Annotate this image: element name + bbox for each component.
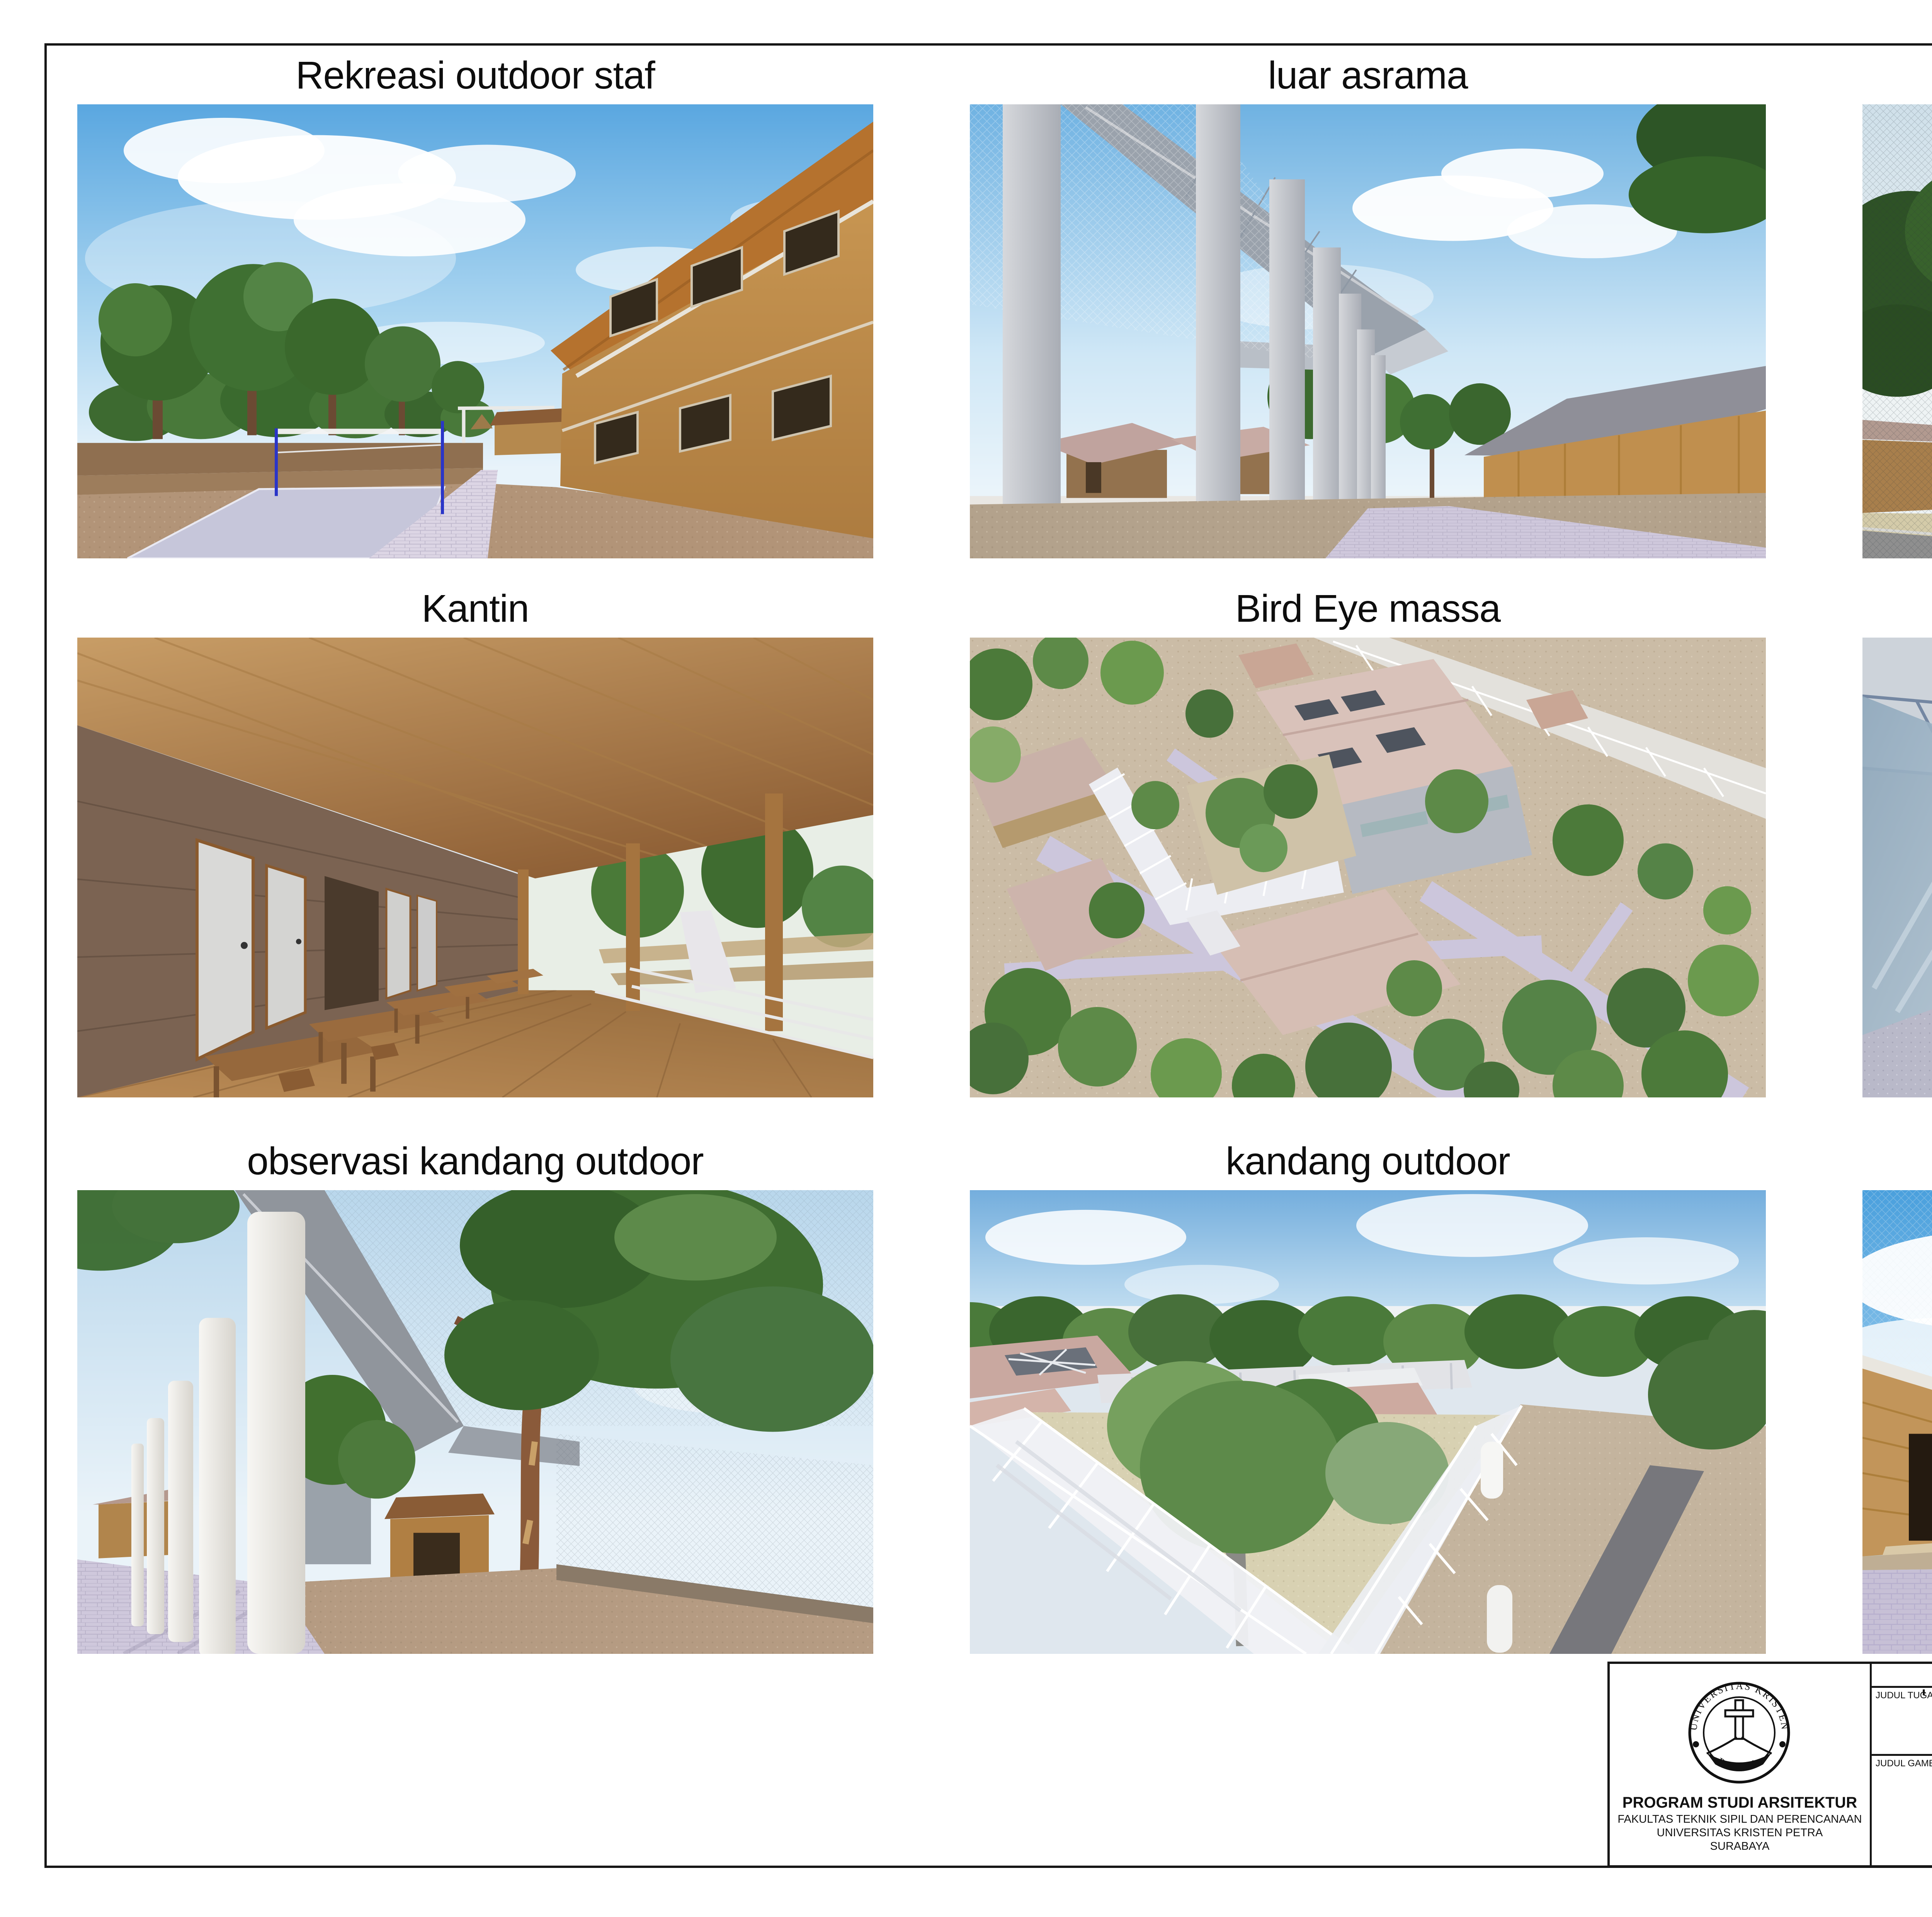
panel-title: Rekreasi outdoor staf xyxy=(77,46,873,104)
judul-gambar-cell: JUDUL GAMBAR Perspektif xyxy=(1872,1756,1932,1865)
render-entrance-kandang-dan-satwa xyxy=(1862,1190,1932,1654)
institution-faculty: FAKULTAS TEKNIK SIPIL DAN PERENCANAAN xyxy=(1610,1813,1870,1826)
render-bird-eye-massa xyxy=(970,638,1766,1097)
panel-title: observasi kandang Indoor xyxy=(1862,580,1932,638)
render-image xyxy=(970,638,1766,1097)
render-kandang-outdoor-bottom xyxy=(970,1190,1766,1654)
render-observasi-kandang-indoor xyxy=(1862,638,1932,1097)
render-luar-asrama xyxy=(970,104,1766,558)
judul-gambar-value: Perspektif xyxy=(1872,1775,1932,1805)
judul-gambar-label: JUDUL GAMBAR xyxy=(1876,1758,1932,1769)
panel-title: kandang outdoor xyxy=(970,1132,1766,1190)
render-rekreasi-outdoor-staf xyxy=(77,104,873,558)
presentation-board: Rekreasi outdoor staf xyxy=(0,0,1932,1917)
judul-tugas-cell: JUDUL TUGAS Fasilitas Rehabilitasi Orang… xyxy=(1872,1688,1932,1756)
ground xyxy=(970,493,1766,558)
institution-city: SURABAYA xyxy=(1610,1840,1870,1853)
render-image xyxy=(970,104,1766,558)
panel-title: Bird Eye massa xyxy=(970,580,1766,638)
panel-kantin: Kantin xyxy=(77,580,873,1097)
institution-cell: UNIVERSITAS KRISTEN PETRA PROGRAM STUDI … xyxy=(1610,1664,1872,1865)
semester-header: TUGAS AKHIR - SEMESTER GANJIL 2022/2023 xyxy=(1872,1668,1932,1684)
panel-title: luar asrama xyxy=(970,46,1766,104)
render-kandang-outdoor-top xyxy=(1862,104,1932,558)
header-cell: TUGAS AKHIR - SEMESTER GANJIL 2022/2023 xyxy=(1872,1664,1932,1688)
left-building xyxy=(1862,1355,1932,1568)
panel-observasi-kandang-outdoor: observasi kandang outdoor xyxy=(77,1132,873,1654)
render-image xyxy=(77,638,873,1097)
panel-luar-asrama: luar asrama xyxy=(970,46,1766,558)
panel-entrance-kandang-dan-satwa: Entrance kandang dan satwa xyxy=(1862,1132,1932,1654)
render-image xyxy=(1862,638,1932,1097)
render-image xyxy=(970,1190,1766,1654)
panel-observasi-kandang-indoor: observasi kandang Indoor xyxy=(1862,580,1932,1097)
panel-rekreasi-outdoor-staf: Rekreasi outdoor staf xyxy=(77,46,873,558)
title-block-middle-column: TUGAS AKHIR - SEMESTER GANJIL 2022/2023 … xyxy=(1872,1664,1932,1865)
title-block: UNIVERSITAS KRISTEN PETRA PROGRAM STUDI … xyxy=(1607,1662,1932,1868)
panel-kandang-outdoor-top: kandang outdoor xyxy=(1862,46,1932,558)
panel-title: Kantin xyxy=(77,580,873,638)
panel-title: observasi kandang outdoor xyxy=(77,1132,873,1190)
judul-tugas-line2: Nasional Tanjung Puting, Kalimantan Teng… xyxy=(1872,1730,1932,1750)
chainlink-overlay xyxy=(1862,104,1932,558)
university-seal-logo: UNIVERSITAS KRISTEN PETRA xyxy=(1681,1675,1797,1791)
panel-title: kandang outdoor xyxy=(1862,46,1932,104)
render-image xyxy=(77,1190,873,1654)
render-image xyxy=(77,104,873,558)
judul-tugas-clipped-line: Fasilitas Rehabilitasi Orangutan di Tama… xyxy=(1872,1689,1932,1699)
render-image xyxy=(1862,104,1932,558)
panel-title: Entrance kandang dan satwa xyxy=(1862,1132,1932,1190)
render-image xyxy=(1862,1190,1932,1654)
judul-tugas-line1: Fasilitas Rehabilitasi Orangutan di Tama… xyxy=(1872,1708,1932,1727)
glass-wall xyxy=(1862,696,1932,1035)
institution-university: UNIVERSITAS KRISTEN PETRA xyxy=(1610,1826,1870,1839)
institution-program: PROGRAM STUDI ARSITEKTUR xyxy=(1610,1794,1870,1812)
panel-kandang-outdoor-bottom: kandang outdoor xyxy=(970,1132,1766,1654)
panel-bird-eye-massa: Bird Eye massa xyxy=(970,580,1766,1097)
render-kantin xyxy=(77,638,873,1097)
render-observasi-kandang-outdoor xyxy=(77,1190,873,1654)
